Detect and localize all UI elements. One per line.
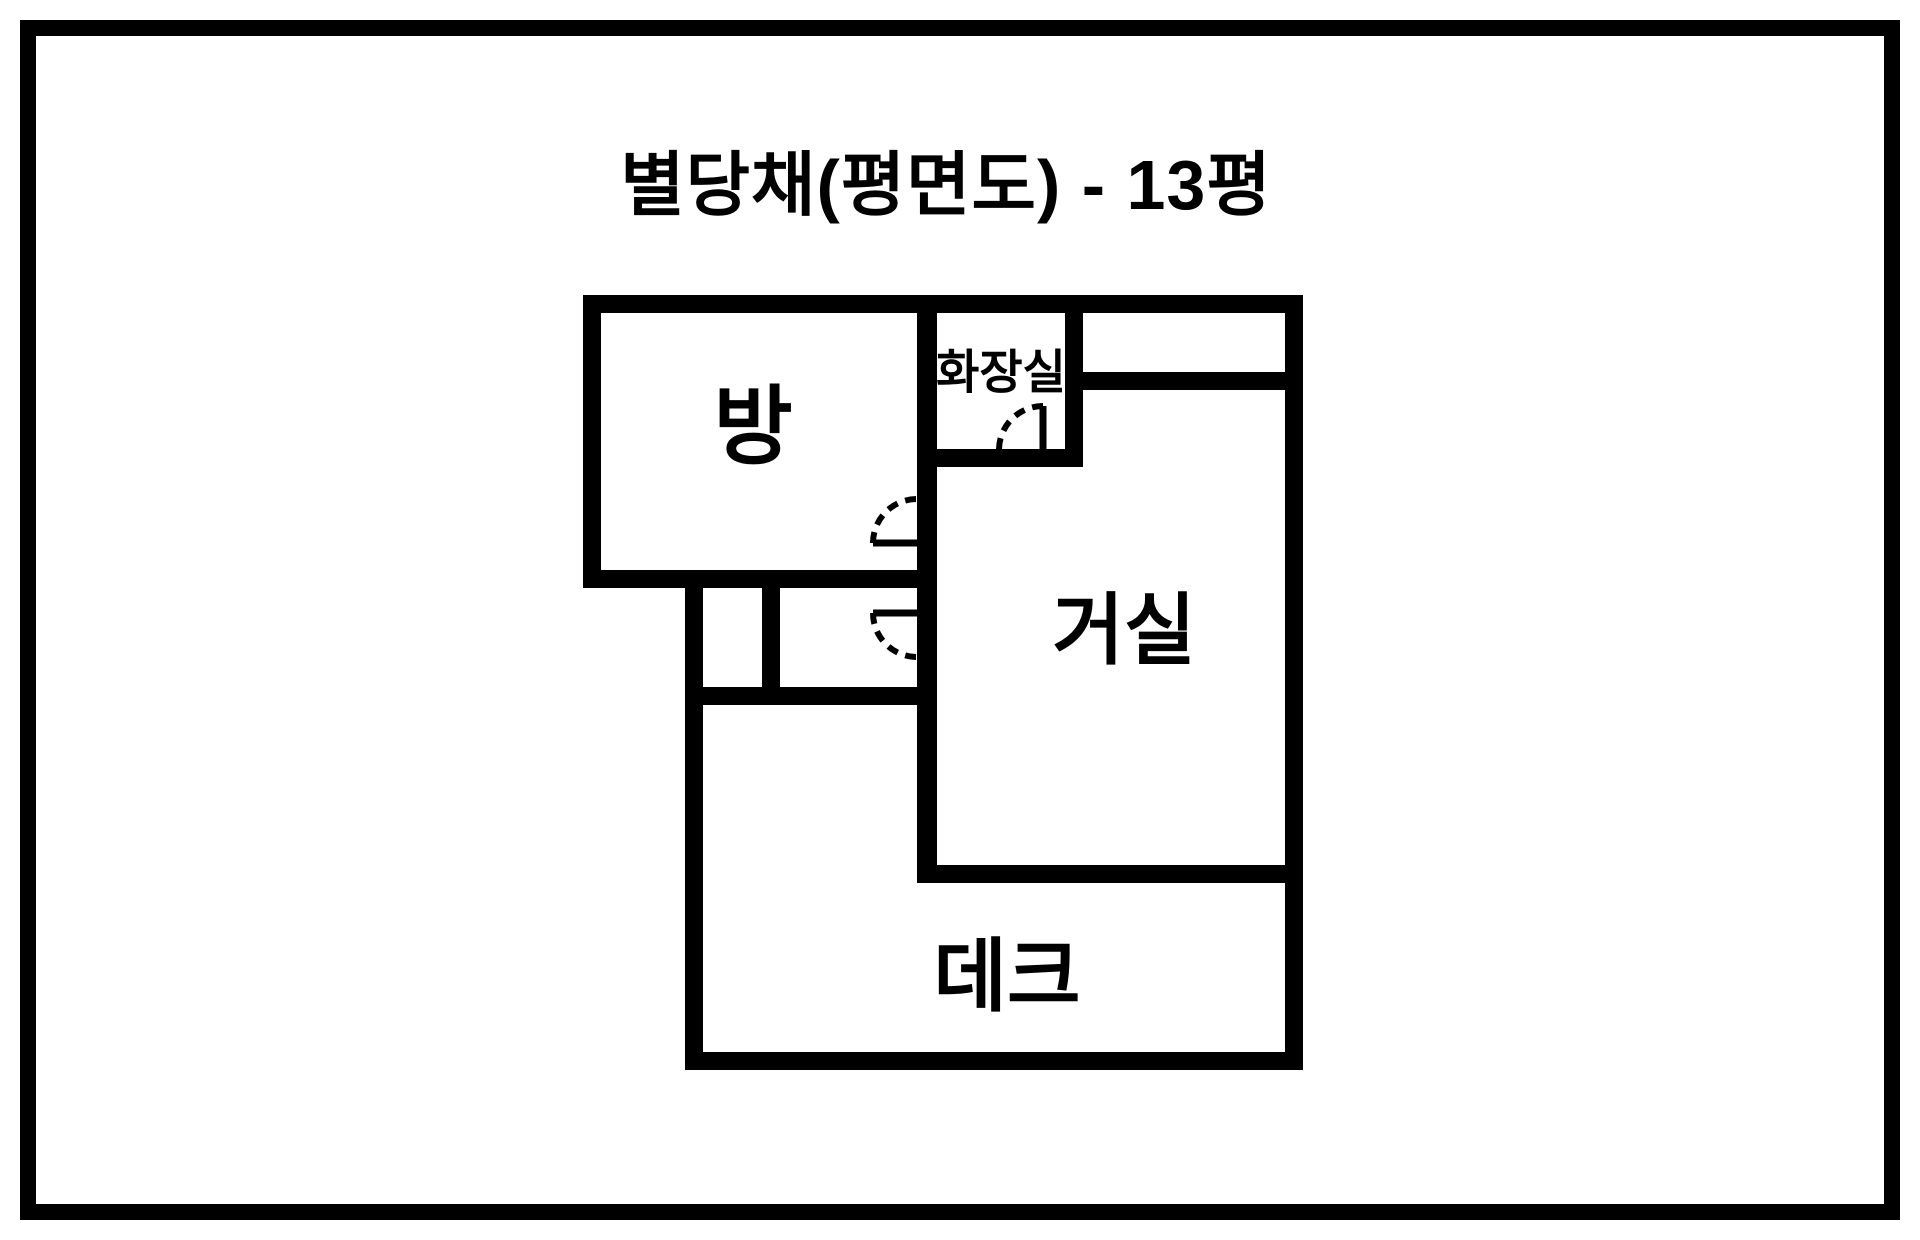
- room-label-bang: 방: [713, 384, 792, 470]
- hall-door-arc: [873, 613, 917, 657]
- room-left-wall: [583, 295, 601, 588]
- livingroom-bottom-wall: [917, 865, 1303, 883]
- floorplan-page: 별당채(평면도) - 13평 방 화장실 거실 데크: [0, 0, 1920, 1240]
- room-bottom-wall: [583, 570, 937, 588]
- bathroom-bottom-wall: [917, 449, 1083, 467]
- closet-strip-bottom-wall: [1065, 372, 1303, 390]
- floorplan-drawing: [0, 0, 1920, 1240]
- deck-left-wall: [685, 588, 703, 1070]
- room-label-deck: 데크: [933, 937, 1080, 1017]
- room-label-living: 거실: [1052, 591, 1196, 669]
- top-wall: [583, 295, 1303, 313]
- room-door-arc: [873, 499, 917, 543]
- central-wall: [917, 295, 937, 883]
- deck-bottom-wall: [685, 1052, 1303, 1070]
- bathroom-door-arc: [999, 406, 1043, 450]
- right-wall: [1285, 295, 1303, 1070]
- hall-bottom-wall: [685, 687, 937, 705]
- room-label-bathroom: 화장실: [936, 349, 1066, 396]
